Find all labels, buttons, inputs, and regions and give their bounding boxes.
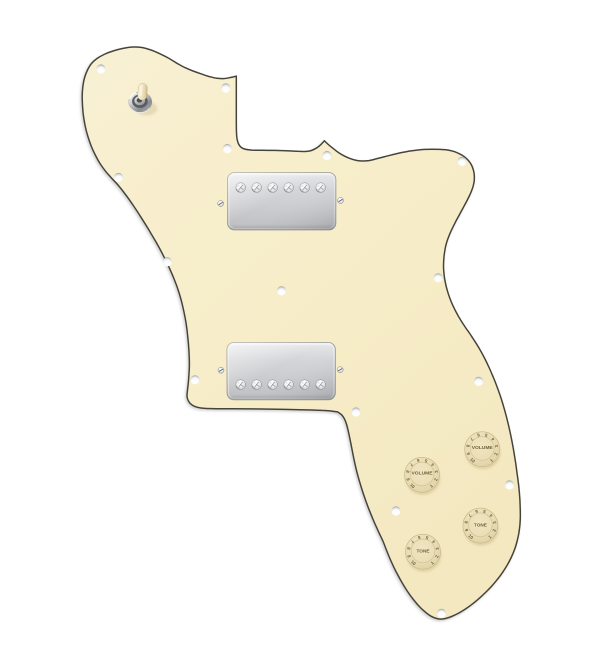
svg-text:TONE: TONE — [417, 548, 430, 553]
svg-text:VOLUME: VOLUME — [412, 471, 434, 477]
svg-text:VOLUME: VOLUME — [472, 445, 494, 451]
svg-text:TONE: TONE — [474, 522, 487, 527]
